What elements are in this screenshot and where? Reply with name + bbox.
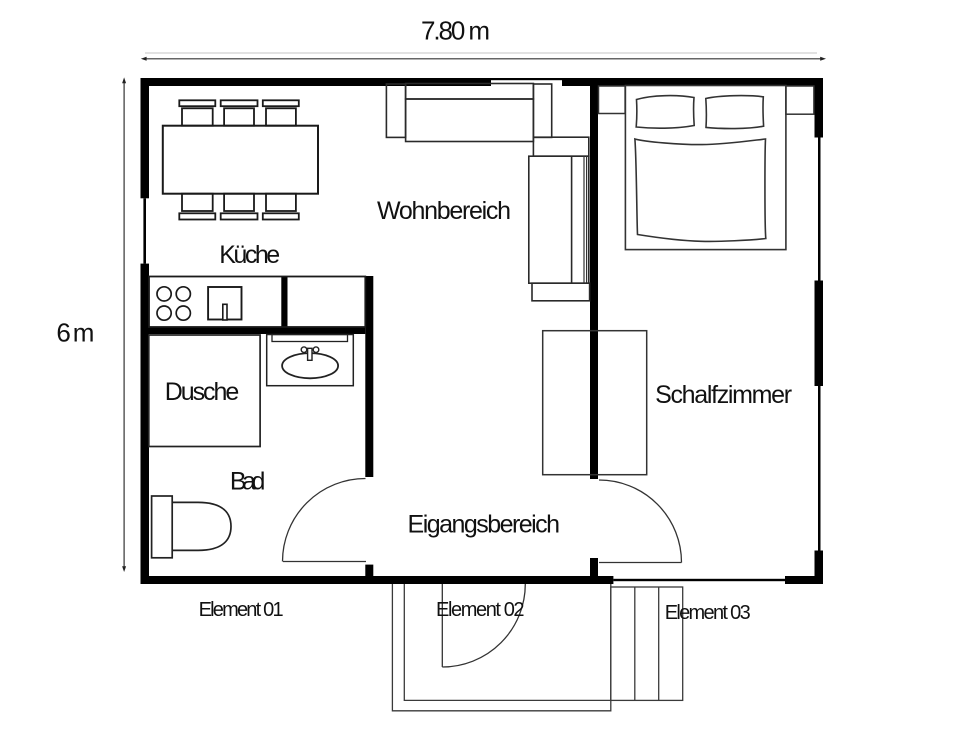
svg-text:Wohnbereich: Wohnbereich (377, 197, 511, 225)
svg-text:Küche: Küche (219, 241, 280, 269)
svg-text:Element 02: Element 02 (436, 599, 525, 621)
svg-text:Schalfzimmer: Schalfzimmer (655, 381, 792, 409)
svg-text:Dusche: Dusche (165, 378, 240, 406)
svg-text:Element 03: Element 03 (665, 602, 751, 624)
svg-text:7.80 m: 7.80 m (421, 15, 490, 45)
svg-text:Bad: Bad (230, 468, 266, 496)
svg-text:Element 01: Element 01 (199, 599, 284, 621)
svg-text:Eigangsbereich: Eigangsbereich (408, 510, 561, 538)
svg-text:6 m: 6 m (56, 318, 94, 348)
